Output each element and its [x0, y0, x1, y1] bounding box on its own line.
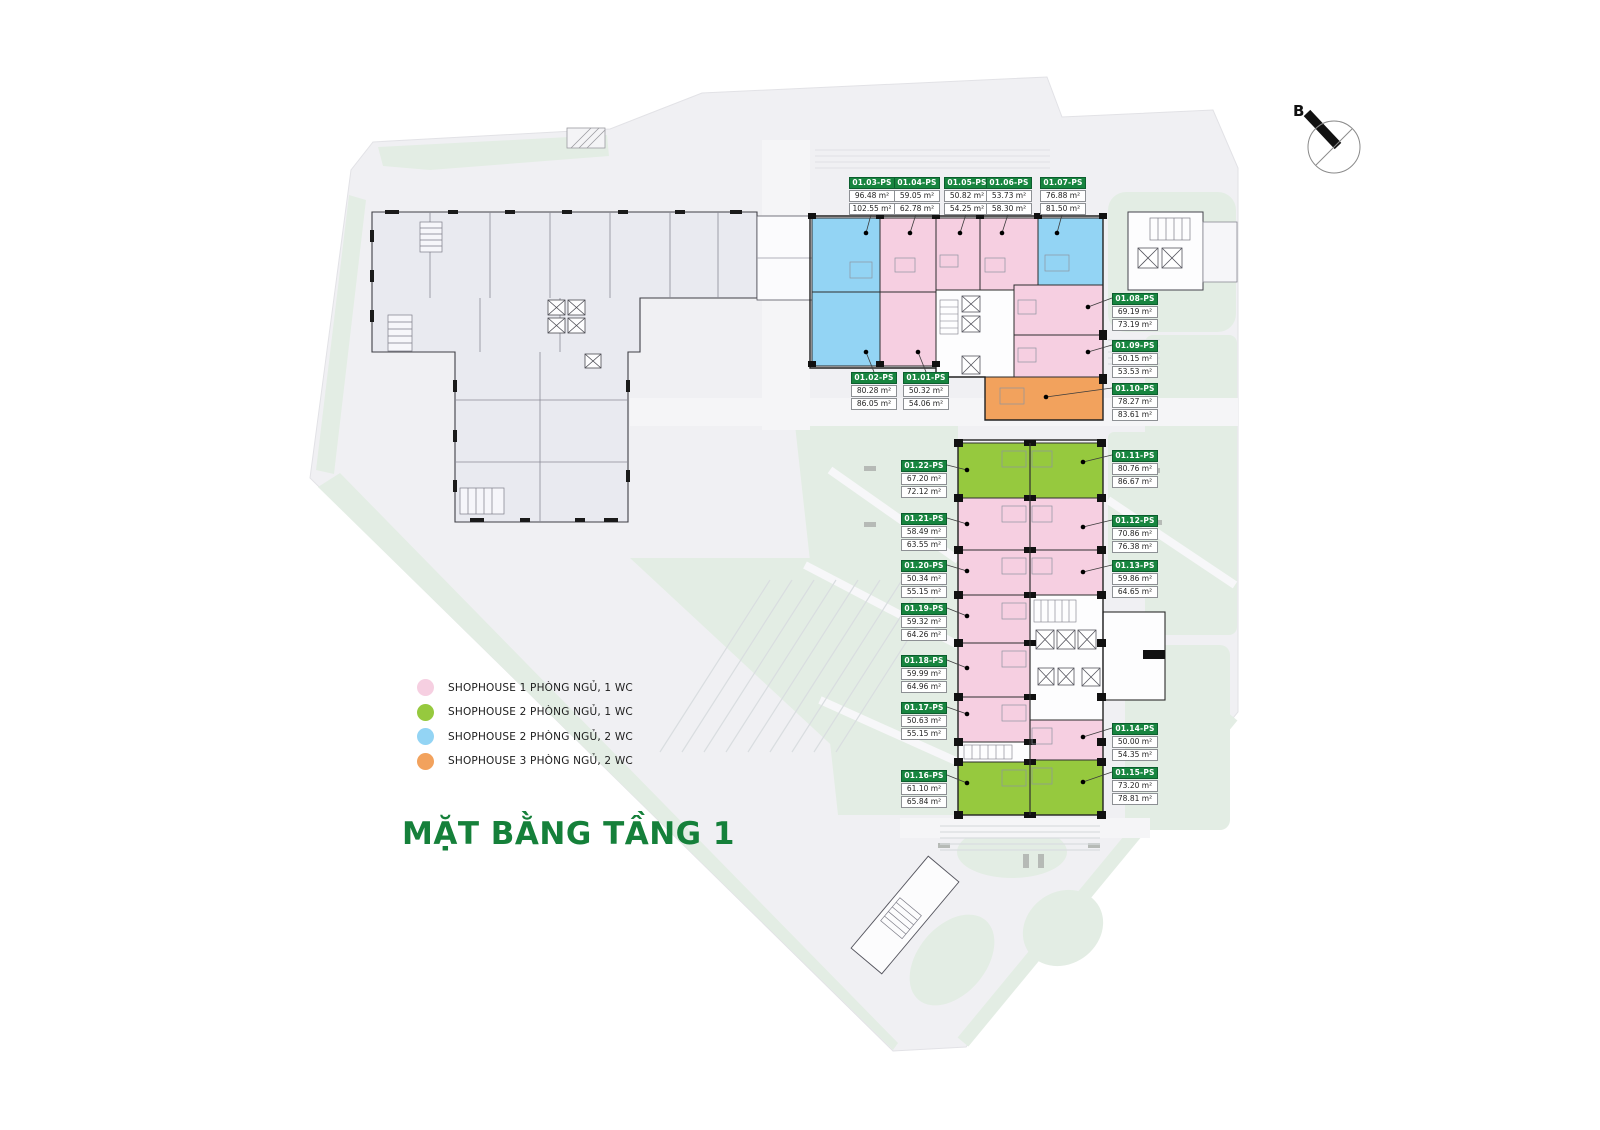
unit-area-net: 50.34 m² — [901, 573, 947, 585]
unit-area-net: 59.86 m² — [1112, 573, 1158, 585]
unit-area-gross: 58.30 m² — [986, 203, 1032, 215]
unit-label-01.22-PS[interactable]: 01.22-PS67.20 m²72.12 m² — [901, 460, 947, 498]
unit-area-gross: 54.35 m² — [1112, 749, 1158, 761]
unit-label-01.03-PS[interactable]: 01.03-PS96.48 m²102.55 m² — [849, 177, 895, 215]
floorplan-page: B 01.01-PS50.32 m²54.06 m²01.02-PS80.28 … — [0, 0, 1600, 1130]
legend-label: SHOPHOUSE 2 PHÒNG NGỦ, 2 WC — [448, 731, 633, 743]
unit-area-gross: 55.15 m² — [901, 586, 947, 598]
unit-area-gross: 73.19 m² — [1112, 319, 1158, 331]
unit-01.01-PS[interactable] — [880, 292, 936, 366]
unit-area-net: 58.49 m² — [901, 526, 947, 538]
unit-id-badge[interactable]: 01.18-PS — [901, 655, 947, 667]
unit-label-01.16-PS[interactable]: 01.16-PS61.10 m²65.84 m² — [901, 770, 947, 808]
unit-area-gross: 64.96 m² — [901, 681, 947, 693]
unit-id-badge[interactable]: 01.02-PS — [851, 372, 897, 384]
unit-label-01.18-PS[interactable]: 01.18-PS59.99 m²64.96 m² — [901, 655, 947, 693]
unit-id-badge[interactable]: 01.09-PS — [1112, 340, 1158, 352]
unit-area-gross: 55.15 m² — [901, 728, 947, 740]
unit-area-net: 50.32 m² — [903, 385, 949, 397]
unit-area-net: 59.32 m² — [901, 616, 947, 628]
unit-01.06-PS[interactable] — [980, 218, 1038, 290]
unit-01.04-PS[interactable] — [880, 218, 936, 292]
unit-area-gross: 63.55 m² — [901, 539, 947, 551]
unit-label-01.08-PS[interactable]: 01.08-PS69.19 m²73.19 m² — [1112, 293, 1158, 331]
unit-label-01.05-PS[interactable]: 01.05-PS50.82 m²54.25 m² — [944, 177, 990, 215]
legend-row: SHOPHOUSE 1 PHÒNG NGỦ, 1 WC — [417, 679, 633, 696]
unit-area-net: 50.00 m² — [1112, 736, 1158, 748]
unit-label-01.07-PS[interactable]: 01.07-PS76.88 m²81.50 m² — [1040, 177, 1086, 215]
unit-area-net: 50.82 m² — [944, 190, 990, 202]
unit-label-01.01-PS[interactable]: 01.01-PS50.32 m²54.06 m² — [903, 372, 949, 410]
unit-label-01.11-PS[interactable]: 01.11-PS80.76 m²86.67 m² — [1112, 450, 1158, 488]
unit-label-01.10-PS[interactable]: 01.10-PS78.27 m²83.61 m² — [1112, 383, 1158, 421]
unit-id-badge[interactable]: 01.22-PS — [901, 460, 947, 472]
unit-id-badge[interactable]: 01.15-PS — [1112, 767, 1158, 779]
legend-row: SHOPHOUSE 2 PHÒNG NGỦ, 2 WC — [417, 728, 633, 745]
top-block-core — [936, 290, 1014, 377]
unit-area-gross: 54.06 m² — [903, 398, 949, 410]
north-arrow-icon — [1307, 113, 1338, 146]
unit-area-net: 61.10 m² — [901, 783, 947, 795]
unit-area-gross: 81.50 m² — [1040, 203, 1086, 215]
unit-area-net: 76.88 m² — [1040, 190, 1086, 202]
legend-label: SHOPHOUSE 3 PHÒNG NGỦ, 2 WC — [448, 755, 633, 767]
unit-label-01.04-PS[interactable]: 01.04-PS59.05 m²62.78 m² — [894, 177, 940, 215]
unit-id-badge[interactable]: 01.07-PS — [1040, 177, 1086, 189]
legend-color-dot — [417, 728, 434, 745]
unit-01.13-PS[interactable] — [1030, 550, 1103, 595]
top-hatch-structure — [567, 128, 605, 148]
unit-label-01.21-PS[interactable]: 01.21-PS58.49 m²63.55 m² — [901, 513, 947, 551]
unit-id-badge[interactable]: 01.08-PS — [1112, 293, 1158, 305]
compass: B — [1293, 102, 1360, 173]
legend-label: SHOPHOUSE 1 PHÒNG NGỦ, 1 WC — [448, 682, 633, 694]
unit-area-gross: 83.61 m² — [1112, 409, 1158, 421]
unit-label-01.09-PS[interactable]: 01.09-PS50.15 m²53.53 m² — [1112, 340, 1158, 378]
legend: SHOPHOUSE 1 PHÒNG NGỦ, 1 WCSHOPHOUSE 2 P… — [417, 679, 633, 777]
legend-color-dot — [417, 704, 434, 721]
unit-id-badge[interactable]: 01.20-PS — [901, 560, 947, 572]
unit-label-01.19-PS[interactable]: 01.19-PS59.32 m²64.26 m² — [901, 603, 947, 641]
unit-area-net: 53.73 m² — [986, 190, 1032, 202]
unit-area-net: 50.15 m² — [1112, 353, 1158, 365]
unit-label-01.17-PS[interactable]: 01.17-PS50.63 m²55.15 m² — [901, 702, 947, 740]
unit-01.17-PS[interactable] — [958, 697, 1030, 742]
unit-area-gross: 86.05 m² — [851, 398, 897, 410]
unit-area-gross: 72.12 m² — [901, 486, 947, 498]
unit-area-net: 80.28 m² — [851, 385, 897, 397]
legend-row: SHOPHOUSE 2 PHÒNG NGỦ, 1 WC — [417, 704, 633, 721]
unit-id-badge[interactable]: 01.21-PS — [901, 513, 947, 525]
unit-id-badge[interactable]: 01.01-PS — [903, 372, 949, 384]
compass-north-label: B — [1293, 102, 1304, 120]
unit-area-net: 96.48 m² — [849, 190, 895, 202]
unit-label-01.13-PS[interactable]: 01.13-PS59.86 m²64.65 m² — [1112, 560, 1158, 598]
unit-area-gross: 102.55 m² — [849, 203, 895, 215]
unit-area-net: 78.27 m² — [1112, 396, 1158, 408]
unit-area-net: 80.76 m² — [1112, 463, 1158, 475]
unit-area-gross: 65.84 m² — [901, 796, 947, 808]
unit-01.20-PS[interactable] — [958, 550, 1030, 595]
unit-label-01.02-PS[interactable]: 01.02-PS80.28 m²86.05 m² — [851, 372, 897, 410]
unit-id-badge[interactable]: 01.16-PS — [901, 770, 947, 782]
unit-label-01.15-PS[interactable]: 01.15-PS73.20 m²78.81 m² — [1112, 767, 1158, 805]
unit-01.08-PS[interactable] — [1014, 285, 1103, 335]
legend-color-dot — [417, 753, 434, 770]
unit-area-gross: 53.53 m² — [1112, 366, 1158, 378]
unit-area-net: 59.99 m² — [901, 668, 947, 680]
unit-id-badge[interactable]: 01.13-PS — [1112, 560, 1158, 572]
unit-01.05-PS[interactable] — [936, 218, 980, 290]
unit-id-badge[interactable]: 01.12-PS — [1112, 515, 1158, 527]
unit-area-net: 67.20 m² — [901, 473, 947, 485]
page-title: MẶT BẰNG TẦNG 1 — [402, 816, 735, 852]
unit-01.14-PS[interactable] — [1030, 720, 1103, 760]
unit-label-01.12-PS[interactable]: 01.12-PS70.86 m²76.38 m² — [1112, 515, 1158, 553]
unit-label-01.14-PS[interactable]: 01.14-PS50.00 m²54.35 m² — [1112, 723, 1158, 761]
unit-id-badge[interactable]: 01.17-PS — [901, 702, 947, 714]
unit-area-gross: 78.81 m² — [1112, 793, 1158, 805]
unit-01.07-PS[interactable] — [1038, 218, 1103, 285]
unit-area-gross: 64.26 m² — [901, 629, 947, 641]
legend-color-dot — [417, 679, 434, 696]
unit-label-01.06-PS[interactable]: 01.06-PS53.73 m²58.30 m² — [986, 177, 1032, 215]
unit-id-badge[interactable]: 01.14-PS — [1112, 723, 1158, 735]
floorplan-drawing: B — [0, 0, 1600, 1130]
unit-area-net: 69.19 m² — [1112, 306, 1158, 318]
unit-01.09-PS[interactable] — [1014, 335, 1103, 377]
unit-01.03-PS[interactable] — [812, 218, 880, 292]
unit-area-net: 70.86 m² — [1112, 528, 1158, 540]
unit-id-badge[interactable]: 01.11-PS — [1112, 450, 1158, 462]
unit-area-net: 73.20 m² — [1112, 780, 1158, 792]
unit-01.10-PS[interactable] — [985, 377, 1103, 420]
utility-structure — [1128, 212, 1237, 290]
unit-area-net: 50.63 m² — [901, 715, 947, 727]
unit-id-badge[interactable]: 01.04-PS — [894, 177, 940, 189]
unit-id-badge[interactable]: 01.03-PS — [849, 177, 895, 189]
unit-area-gross: 62.78 m² — [894, 203, 940, 215]
unit-id-badge[interactable]: 01.05-PS — [944, 177, 990, 189]
unit-area-net: 59.05 m² — [894, 190, 940, 202]
legend-row: SHOPHOUSE 3 PHÒNG NGỦ, 2 WC — [417, 753, 633, 770]
unit-01.02-PS[interactable] — [812, 292, 880, 366]
unit-id-badge[interactable]: 01.06-PS — [986, 177, 1032, 189]
unit-area-gross: 86.67 m² — [1112, 476, 1158, 488]
unit-id-badge[interactable]: 01.19-PS — [901, 603, 947, 615]
legend-label: SHOPHOUSE 2 PHÒNG NGỦ, 1 WC — [448, 706, 633, 718]
unit-area-gross: 76.38 m² — [1112, 541, 1158, 553]
unit-area-gross: 54.25 m² — [944, 203, 990, 215]
unit-area-gross: 64.65 m² — [1112, 586, 1158, 598]
unit-id-badge[interactable]: 01.10-PS — [1112, 383, 1158, 395]
unit-label-01.20-PS[interactable]: 01.20-PS50.34 m²55.15 m² — [901, 560, 947, 598]
